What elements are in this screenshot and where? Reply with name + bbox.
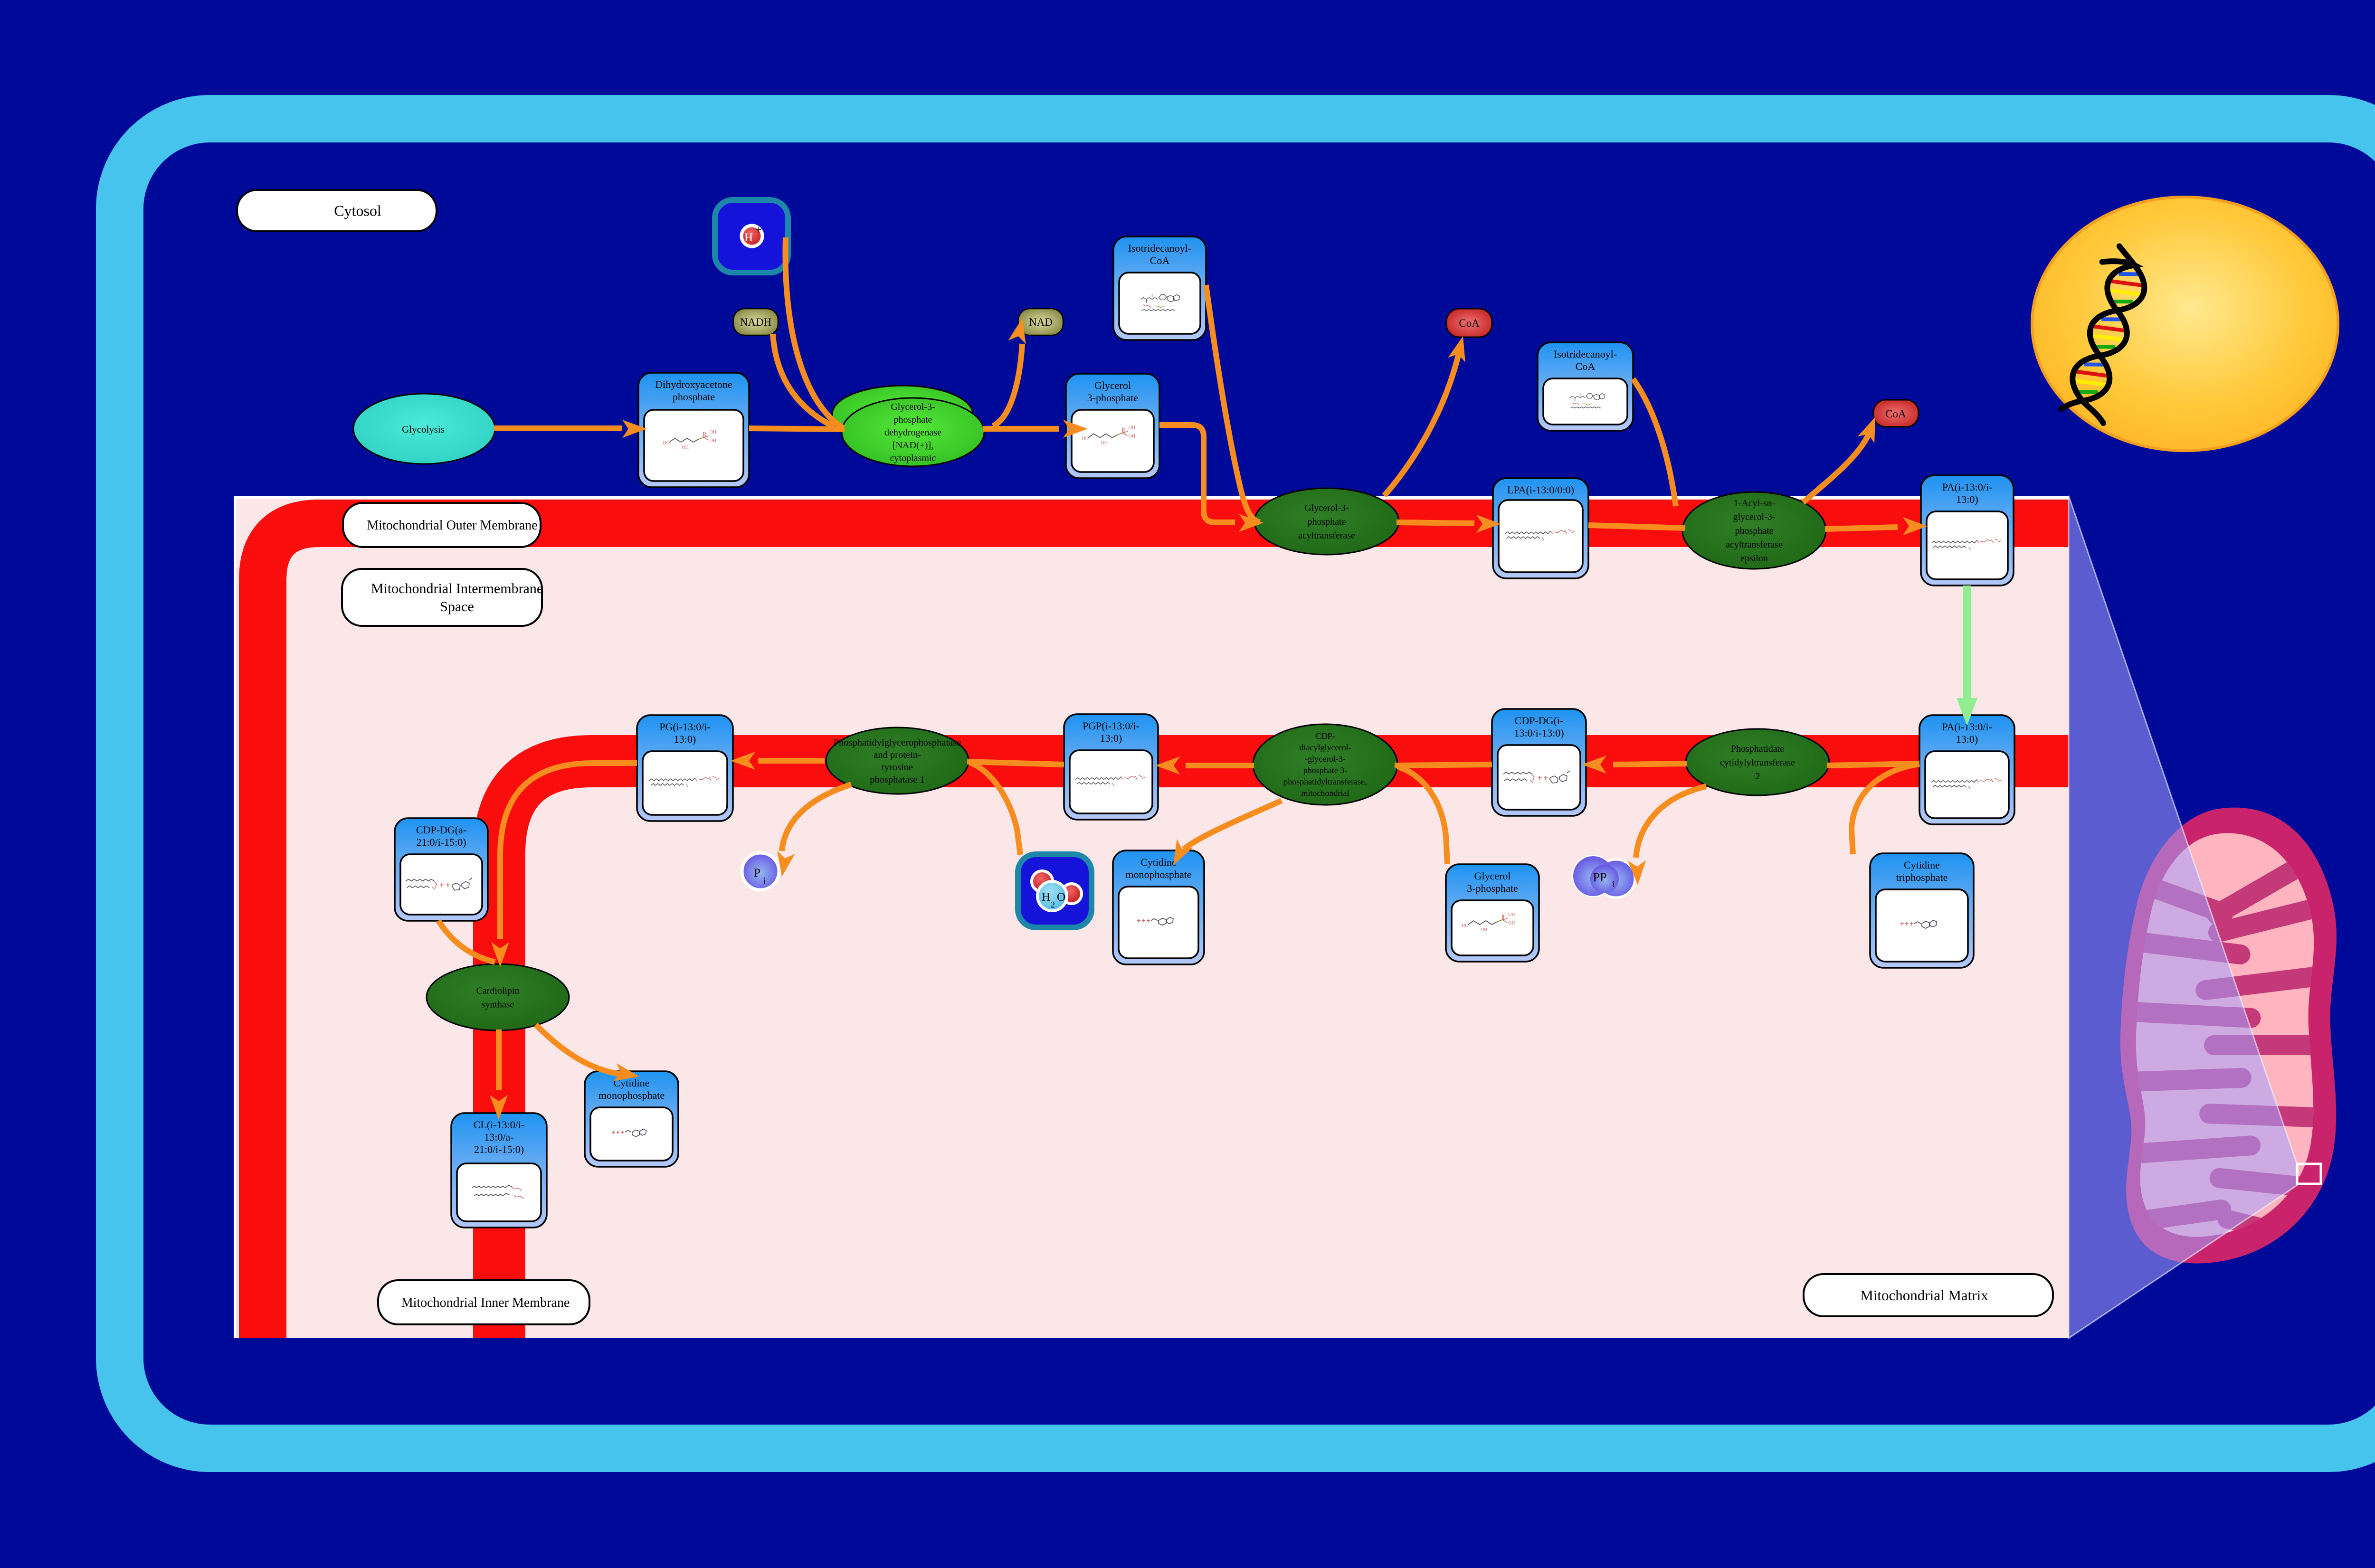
- svg-text:H: H: [1042, 891, 1050, 904]
- svg-text:Mitochondrial Inner Membrane: Mitochondrial Inner Membrane: [401, 1295, 570, 1310]
- svg-text:+: +: [755, 223, 762, 236]
- svg-text:PP: PP: [1593, 870, 1607, 884]
- svg-text:Glycerol-3-phosphatedehydrogen: Glycerol-3-phosphatedehydrogenase[NAD(+)…: [884, 402, 941, 463]
- svg-text:CoA: CoA: [1459, 317, 1480, 329]
- svg-text:CDP-DG(i-13:0/i-13:0): CDP-DG(i-13:0/i-13:0): [1514, 715, 1564, 739]
- svg-text:CoA: CoA: [1885, 408, 1906, 420]
- svg-text:Mitochondrial Outer Membrane: Mitochondrial Outer Membrane: [367, 518, 537, 533]
- svg-text:2: 2: [1051, 900, 1055, 909]
- svg-text:i: i: [1612, 879, 1615, 889]
- svg-text:O: O: [1057, 891, 1065, 904]
- svg-text:NAD: NAD: [1029, 316, 1053, 328]
- svg-text:Glycolysis: Glycolysis: [402, 424, 445, 435]
- svg-text:LPA(i-13:0/0:0): LPA(i-13:0/0:0): [1507, 484, 1574, 496]
- svg-text:Cytosol: Cytosol: [334, 202, 381, 219]
- svg-text:NADH: NADH: [740, 316, 771, 328]
- svg-text:P: P: [754, 867, 760, 879]
- svg-text:H: H: [744, 231, 753, 244]
- svg-text:Glycerol3-phosphate: Glycerol3-phosphate: [1467, 870, 1518, 894]
- svg-text:i: i: [763, 875, 766, 887]
- svg-text:CDP-DG(a-21:0/i-15:0): CDP-DG(a-21:0/i-15:0): [416, 824, 466, 848]
- svg-text:Glycerol3-phosphate: Glycerol3-phosphate: [1087, 379, 1139, 404]
- svg-text:Mitochondrial Matrix: Mitochondrial Matrix: [1860, 1287, 1988, 1304]
